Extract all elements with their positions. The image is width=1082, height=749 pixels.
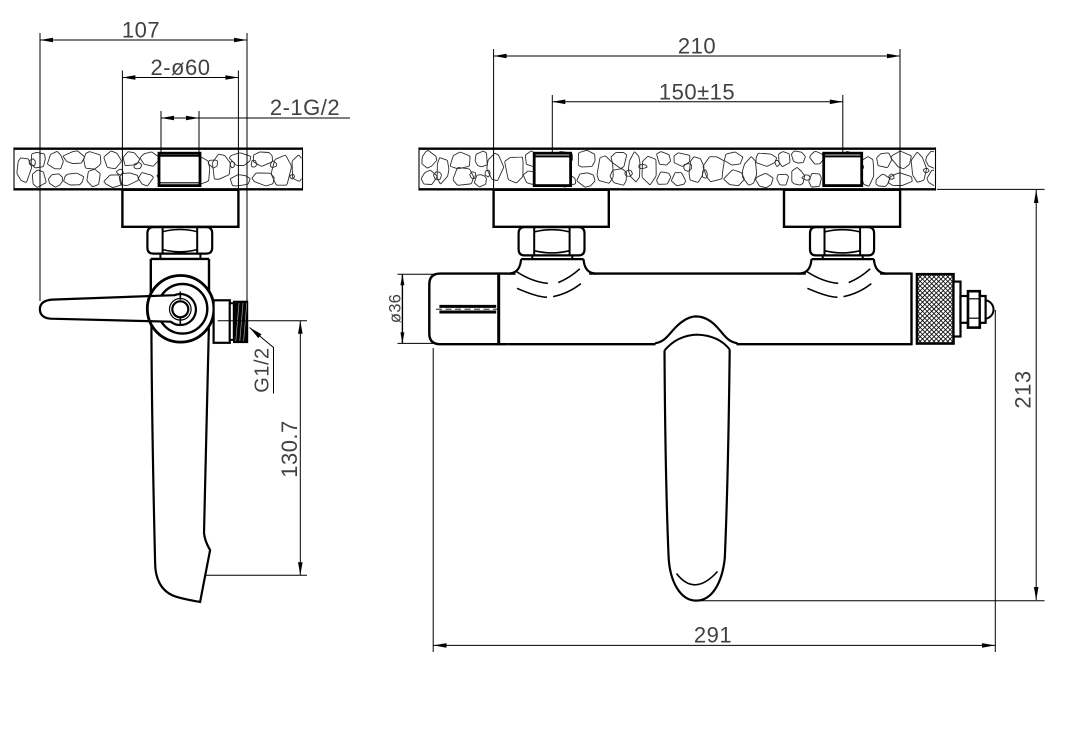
svg-text:213: 213 [1011, 370, 1036, 408]
svg-text:2-1G/2: 2-1G/2 [270, 95, 340, 120]
svg-text:210: 210 [678, 34, 716, 59]
svg-text:ø36: ø36 [387, 294, 405, 323]
svg-text:G1/2: G1/2 [252, 347, 274, 392]
svg-text:150±15: 150±15 [659, 80, 735, 105]
svg-text:130.7: 130.7 [277, 420, 302, 478]
svg-text:291: 291 [694, 623, 732, 648]
svg-text:2-ø60: 2-ø60 [151, 55, 211, 80]
svg-text:107: 107 [122, 18, 160, 43]
